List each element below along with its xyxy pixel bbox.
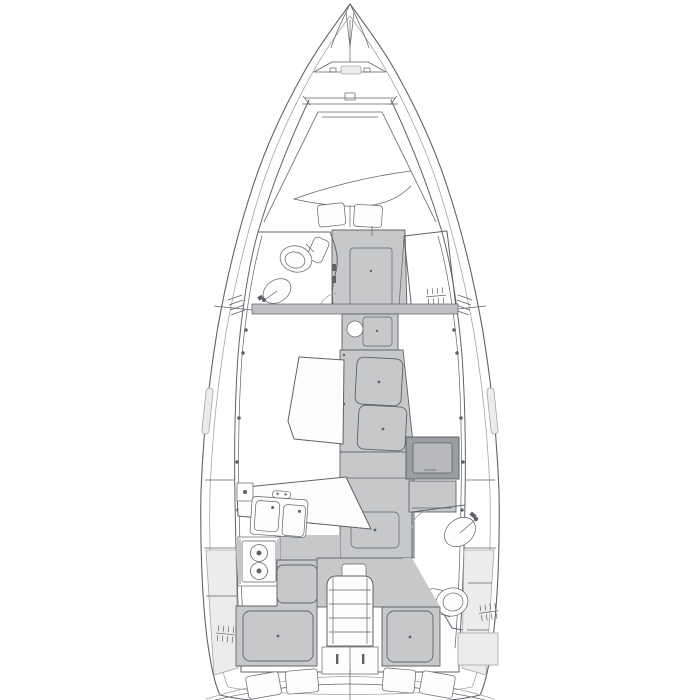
saloon-table [288, 357, 344, 444]
pillow [353, 204, 382, 227]
pillow [285, 669, 319, 695]
pillow [382, 668, 416, 694]
aft-cabin-starboard [382, 607, 440, 666]
fridge [406, 437, 459, 479]
stove-icon [238, 537, 280, 586]
starboard-locker [458, 633, 498, 665]
centerline-settee [340, 350, 414, 452]
boat-floor-plan [0, 0, 700, 700]
ladder [327, 576, 373, 646]
pillow [317, 203, 346, 228]
settee-cushion [357, 405, 407, 451]
mast-cabinet [342, 314, 398, 350]
berth-cushion [277, 565, 317, 603]
passageway-door [332, 226, 407, 312]
floor-plan-page [0, 0, 700, 700]
main-bulkhead [252, 304, 458, 314]
